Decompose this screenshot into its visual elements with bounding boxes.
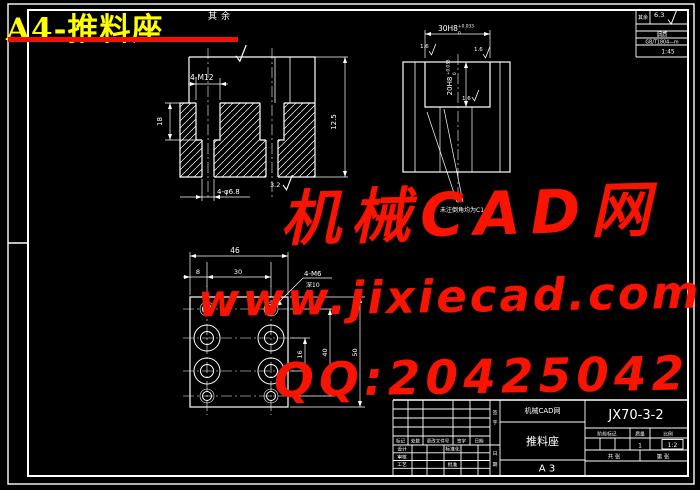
watermark-url: www.jixiecad.com — [198, 266, 700, 328]
sheet-total: 共 张 — [608, 453, 621, 461]
title-block: 标记 处数 更改文件号 签字 日期 设计 标准化 审核 工艺 批准 签 字 日 … — [393, 400, 688, 476]
view1-dim-height: 12.5 — [330, 114, 338, 130]
corner-row4: 1:45 — [661, 49, 675, 56]
rev-col-count: 处数 — [411, 438, 420, 445]
header-stage: 阶段标记 — [597, 431, 616, 438]
cad-sheet: A4-推料座 其余 6.3 调质 GB/T1804—m — [0, 0, 700, 490]
rev-col-file: 更改文件号 — [427, 438, 450, 445]
view1-dim-depth: 18 — [156, 117, 164, 126]
view2-dim-width-tol-dn: 0 — [458, 31, 461, 37]
side-char-4: 期 — [493, 462, 498, 468]
view2-outline — [403, 62, 510, 172]
sig-check: 审核 — [397, 453, 407, 460]
value-scale: 1:2 — [668, 442, 678, 449]
corner-roughness-value: 6.3 — [654, 11, 664, 19]
side-column: 签 字 日 期 — [493, 409, 498, 468]
part-name: 推料座 — [526, 434, 559, 448]
roughness-check-icon — [236, 45, 246, 61]
view2-dim-width: 30H8 — [438, 24, 458, 33]
view2-rough-left: 1.6 — [420, 44, 429, 50]
company-name: 机械CAD网 — [524, 406, 560, 415]
rev-col-date: 日期 — [475, 439, 484, 445]
sheet-title: A4-推料座 — [6, 4, 164, 49]
rev-col-sign: 签字 — [457, 438, 466, 445]
revision-headers: 标记 处数 更改文件号 签字 日期 — [396, 438, 484, 445]
view3-dim-total-w: 46 — [230, 246, 240, 255]
drawing-number: JX70-3-2 — [607, 408, 663, 423]
value-mass: 1 — [638, 443, 642, 450]
roughness-check-icon — [472, 90, 479, 101]
roughness-check-icon — [668, 11, 677, 25]
rev-col-mark: 标记 — [396, 438, 405, 445]
view2-dim-slot-tol-up: +0.033 — [446, 59, 451, 75]
view2-rough-right: 1.6 — [474, 47, 483, 53]
sig-design: 设计 — [397, 446, 407, 453]
side-char-2: 字 — [493, 419, 498, 426]
header-mass: 质量 — [635, 431, 645, 438]
view2-dim-slot: 20H8 — [446, 77, 454, 96]
view2-dim-slot-tol-dn: 0 — [452, 72, 457, 75]
title-underline — [8, 37, 238, 42]
sig-approve: 批准 — [448, 461, 458, 468]
general-roughness-label: 其余 — [208, 10, 234, 22]
sig-standard: 标准化 — [445, 446, 460, 453]
corner-row2: 调质 — [656, 31, 668, 39]
sheet-size: A 3 — [539, 464, 555, 475]
view2-dim-slot-group: 20H8 +0.033 0 — [446, 59, 458, 95]
watermark-qq: QQ:20425042 — [274, 346, 690, 408]
view1-dim-thread: 4-M12 — [190, 73, 214, 82]
header-scale: 比例 — [663, 431, 673, 438]
roughness-check-icon — [483, 47, 490, 58]
sig-process: 工艺 — [397, 462, 407, 468]
view2-rough-bottom: 1.6 — [462, 96, 471, 102]
corner-surface-label: 其余 — [638, 14, 648, 21]
side-char-3: 日 — [493, 451, 498, 457]
view1-dim-hole: 4-φ6.8 — [217, 188, 240, 196]
roughness-check-icon — [429, 44, 436, 55]
signature-labels: 设计 标准化 审核 工艺 批准 — [397, 446, 460, 469]
sheet-no: 第 张 — [657, 453, 670, 461]
corner-tolerance-standard: GB/T1804—m — [645, 40, 679, 46]
side-char-1: 签 — [493, 409, 498, 416]
watermark-brand: 机械CAD网 — [279, 161, 661, 258]
view2-dim-width-tol-up: +0.033 — [458, 24, 474, 30]
